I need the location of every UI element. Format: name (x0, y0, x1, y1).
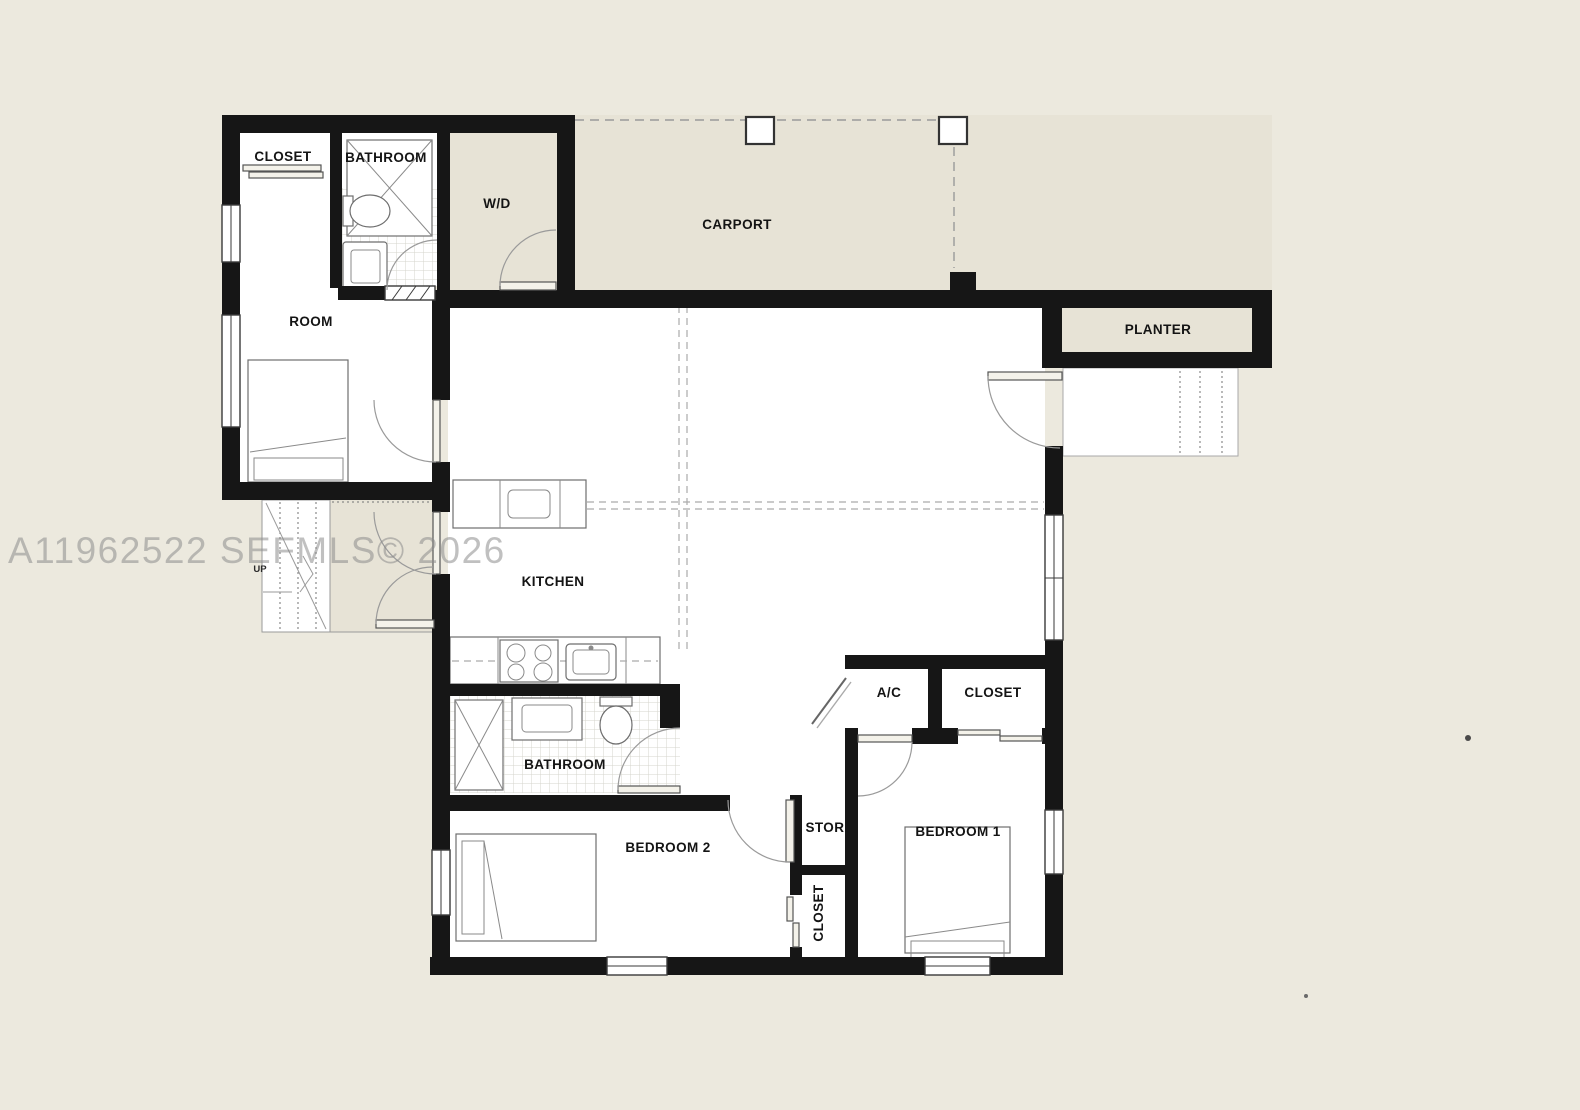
bed-bedroom2 (456, 834, 596, 941)
door-leaf (500, 282, 556, 290)
label-bathroom-main: BATHROOM (524, 757, 606, 772)
bathroom-window (385, 286, 435, 300)
entry-steps (1063, 368, 1238, 456)
label-bathroom-top: BATHROOM (345, 150, 427, 165)
floor-plan-drawing: CLOSET BATHROOM W/D CARPORT PLANTER ROOM… (0, 0, 1580, 1110)
label-closet-hall: CLOSET (964, 685, 1022, 700)
floor-plan-page: CLOSET BATHROOM W/D CARPORT PLANTER ROOM… (0, 0, 1580, 1110)
faucet (589, 646, 594, 651)
door-leaf (786, 800, 794, 862)
label-stor: STOR. (805, 820, 848, 835)
mls-watermark: A11962522 SEFMLS© 2026 (8, 530, 506, 571)
label-closet-bedroom2: CLOSET (811, 884, 826, 942)
label-room: ROOM (289, 314, 333, 329)
label-wd: W/D (483, 196, 510, 211)
label-planter: PLANTER (1125, 322, 1192, 337)
carport-post (746, 117, 774, 144)
toilet (600, 706, 632, 744)
sliding-door (793, 923, 799, 947)
carport-post (939, 117, 967, 144)
door-leaf (858, 735, 912, 742)
door-leaf (376, 620, 434, 628)
label-ac: A/C (877, 685, 901, 700)
label-carport: CARPORT (702, 217, 772, 232)
label-bedroom1: BEDROOM 1 (915, 824, 1000, 839)
bed-bedroom1 (905, 827, 1010, 953)
label-closet-top: CLOSET (254, 149, 312, 164)
entry-door-leaf (988, 372, 1062, 380)
kitchen-island (453, 480, 586, 528)
sliding-door (1000, 736, 1042, 741)
door-leaf (618, 786, 680, 793)
door-leaf (433, 400, 440, 462)
sliding-door (243, 165, 321, 171)
label-bedroom2: BEDROOM 2 (625, 840, 710, 855)
sliding-door (787, 897, 793, 921)
toilet-tank (600, 697, 632, 706)
label-kitchen: KITCHEN (522, 574, 585, 589)
sliding-door (249, 172, 323, 178)
toilet (350, 195, 390, 227)
bed-room (248, 360, 348, 482)
sliding-door (958, 730, 1000, 735)
speck (1304, 994, 1308, 998)
speck (1465, 735, 1471, 741)
